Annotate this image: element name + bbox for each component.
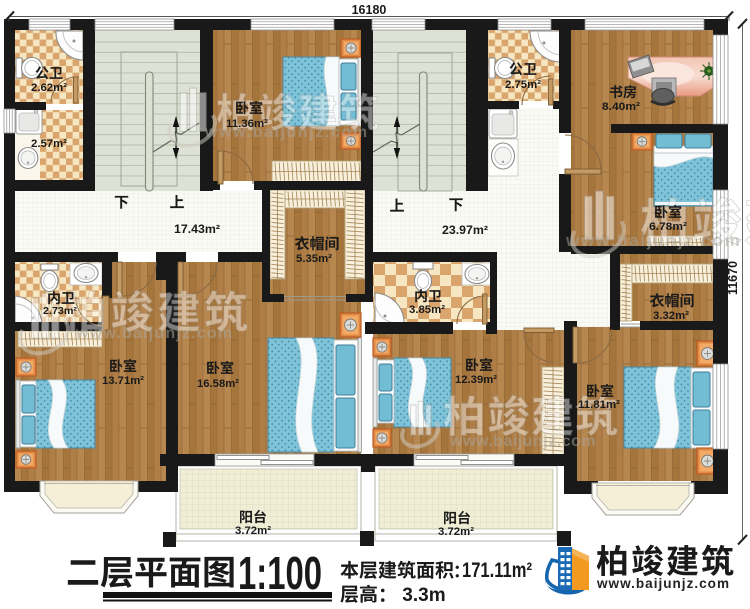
svg-text:3.85m²: 3.85m² bbox=[409, 304, 445, 316]
svg-text:16.58m²: 16.58m² bbox=[197, 378, 239, 390]
svg-text:2.75m²: 2.75m² bbox=[505, 79, 541, 91]
svg-text:1:100: 1:100 bbox=[238, 547, 322, 599]
svg-text:16180: 16180 bbox=[352, 3, 387, 17]
svg-text:2.62m²: 2.62m² bbox=[31, 82, 67, 94]
svg-text:6.78m²: 6.78m² bbox=[649, 221, 687, 233]
svg-text:13.71m²: 13.71m² bbox=[102, 375, 144, 387]
svg-text:8.40m²: 8.40m² bbox=[602, 101, 640, 113]
svg-text:23.97m²: 23.97m² bbox=[442, 223, 488, 237]
svg-text:11670: 11670 bbox=[726, 261, 740, 295]
svg-text:3.72m²: 3.72m² bbox=[235, 525, 271, 537]
svg-text:www.baijunjz.com: www.baijunjz.com bbox=[596, 576, 730, 591]
svg-text:3.32m²: 3.32m² bbox=[653, 310, 689, 322]
svg-text:17.43m²: 17.43m² bbox=[174, 222, 220, 236]
svg-text:3.72m²: 3.72m² bbox=[438, 526, 474, 538]
svg-text:12.39m²: 12.39m² bbox=[455, 374, 497, 386]
svg-text:www.baijunjz.com: www.baijunjz.com bbox=[75, 325, 233, 342]
svg-text:www.baijunjz.com: www.baijunjz.com bbox=[449, 433, 596, 450]
svg-text:171.11m²: 171.11m² bbox=[462, 559, 532, 582]
svg-text:： 3.3m: ： 3.3m bbox=[378, 585, 446, 606]
svg-text:5.35m²: 5.35m² bbox=[296, 253, 332, 265]
svg-text:2.57m²: 2.57m² bbox=[31, 138, 67, 150]
svg-text:www.baijunjz.com: www.baijunjz.com bbox=[565, 231, 742, 250]
svg-text:11.81m²: 11.81m² bbox=[578, 399, 620, 411]
svg-text:11.36m²: 11.36m² bbox=[226, 118, 268, 130]
svg-text:2.73m²: 2.73m² bbox=[43, 305, 78, 317]
